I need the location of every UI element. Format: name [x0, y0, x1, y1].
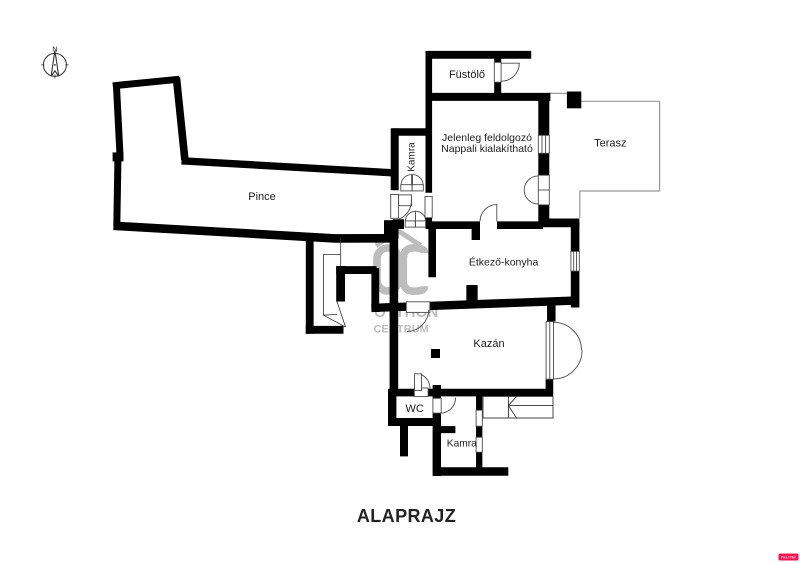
svg-text:Pince: Pince: [248, 191, 276, 203]
svg-text:WC: WC: [406, 403, 424, 415]
svg-text:CENTRUM: CENTRUM: [374, 324, 429, 336]
svg-text:ALAPRAJZ: ALAPRAJZ: [357, 506, 456, 526]
svg-text:Kazán: Kazán: [473, 338, 504, 350]
svg-text:Pixel Film: Pixel Film: [781, 556, 797, 560]
svg-text:Füstölő: Füstölő: [449, 69, 485, 81]
svg-text:Kamra: Kamra: [447, 438, 477, 449]
svg-text:Étkező-konyha: Étkező-konyha: [469, 256, 539, 269]
svg-text:Nappali kialakítható: Nappali kialakítható: [441, 143, 533, 155]
svg-text:N: N: [52, 45, 57, 54]
svg-text:Terasz: Terasz: [594, 138, 626, 150]
svg-text:Kamra: Kamra: [407, 142, 418, 172]
